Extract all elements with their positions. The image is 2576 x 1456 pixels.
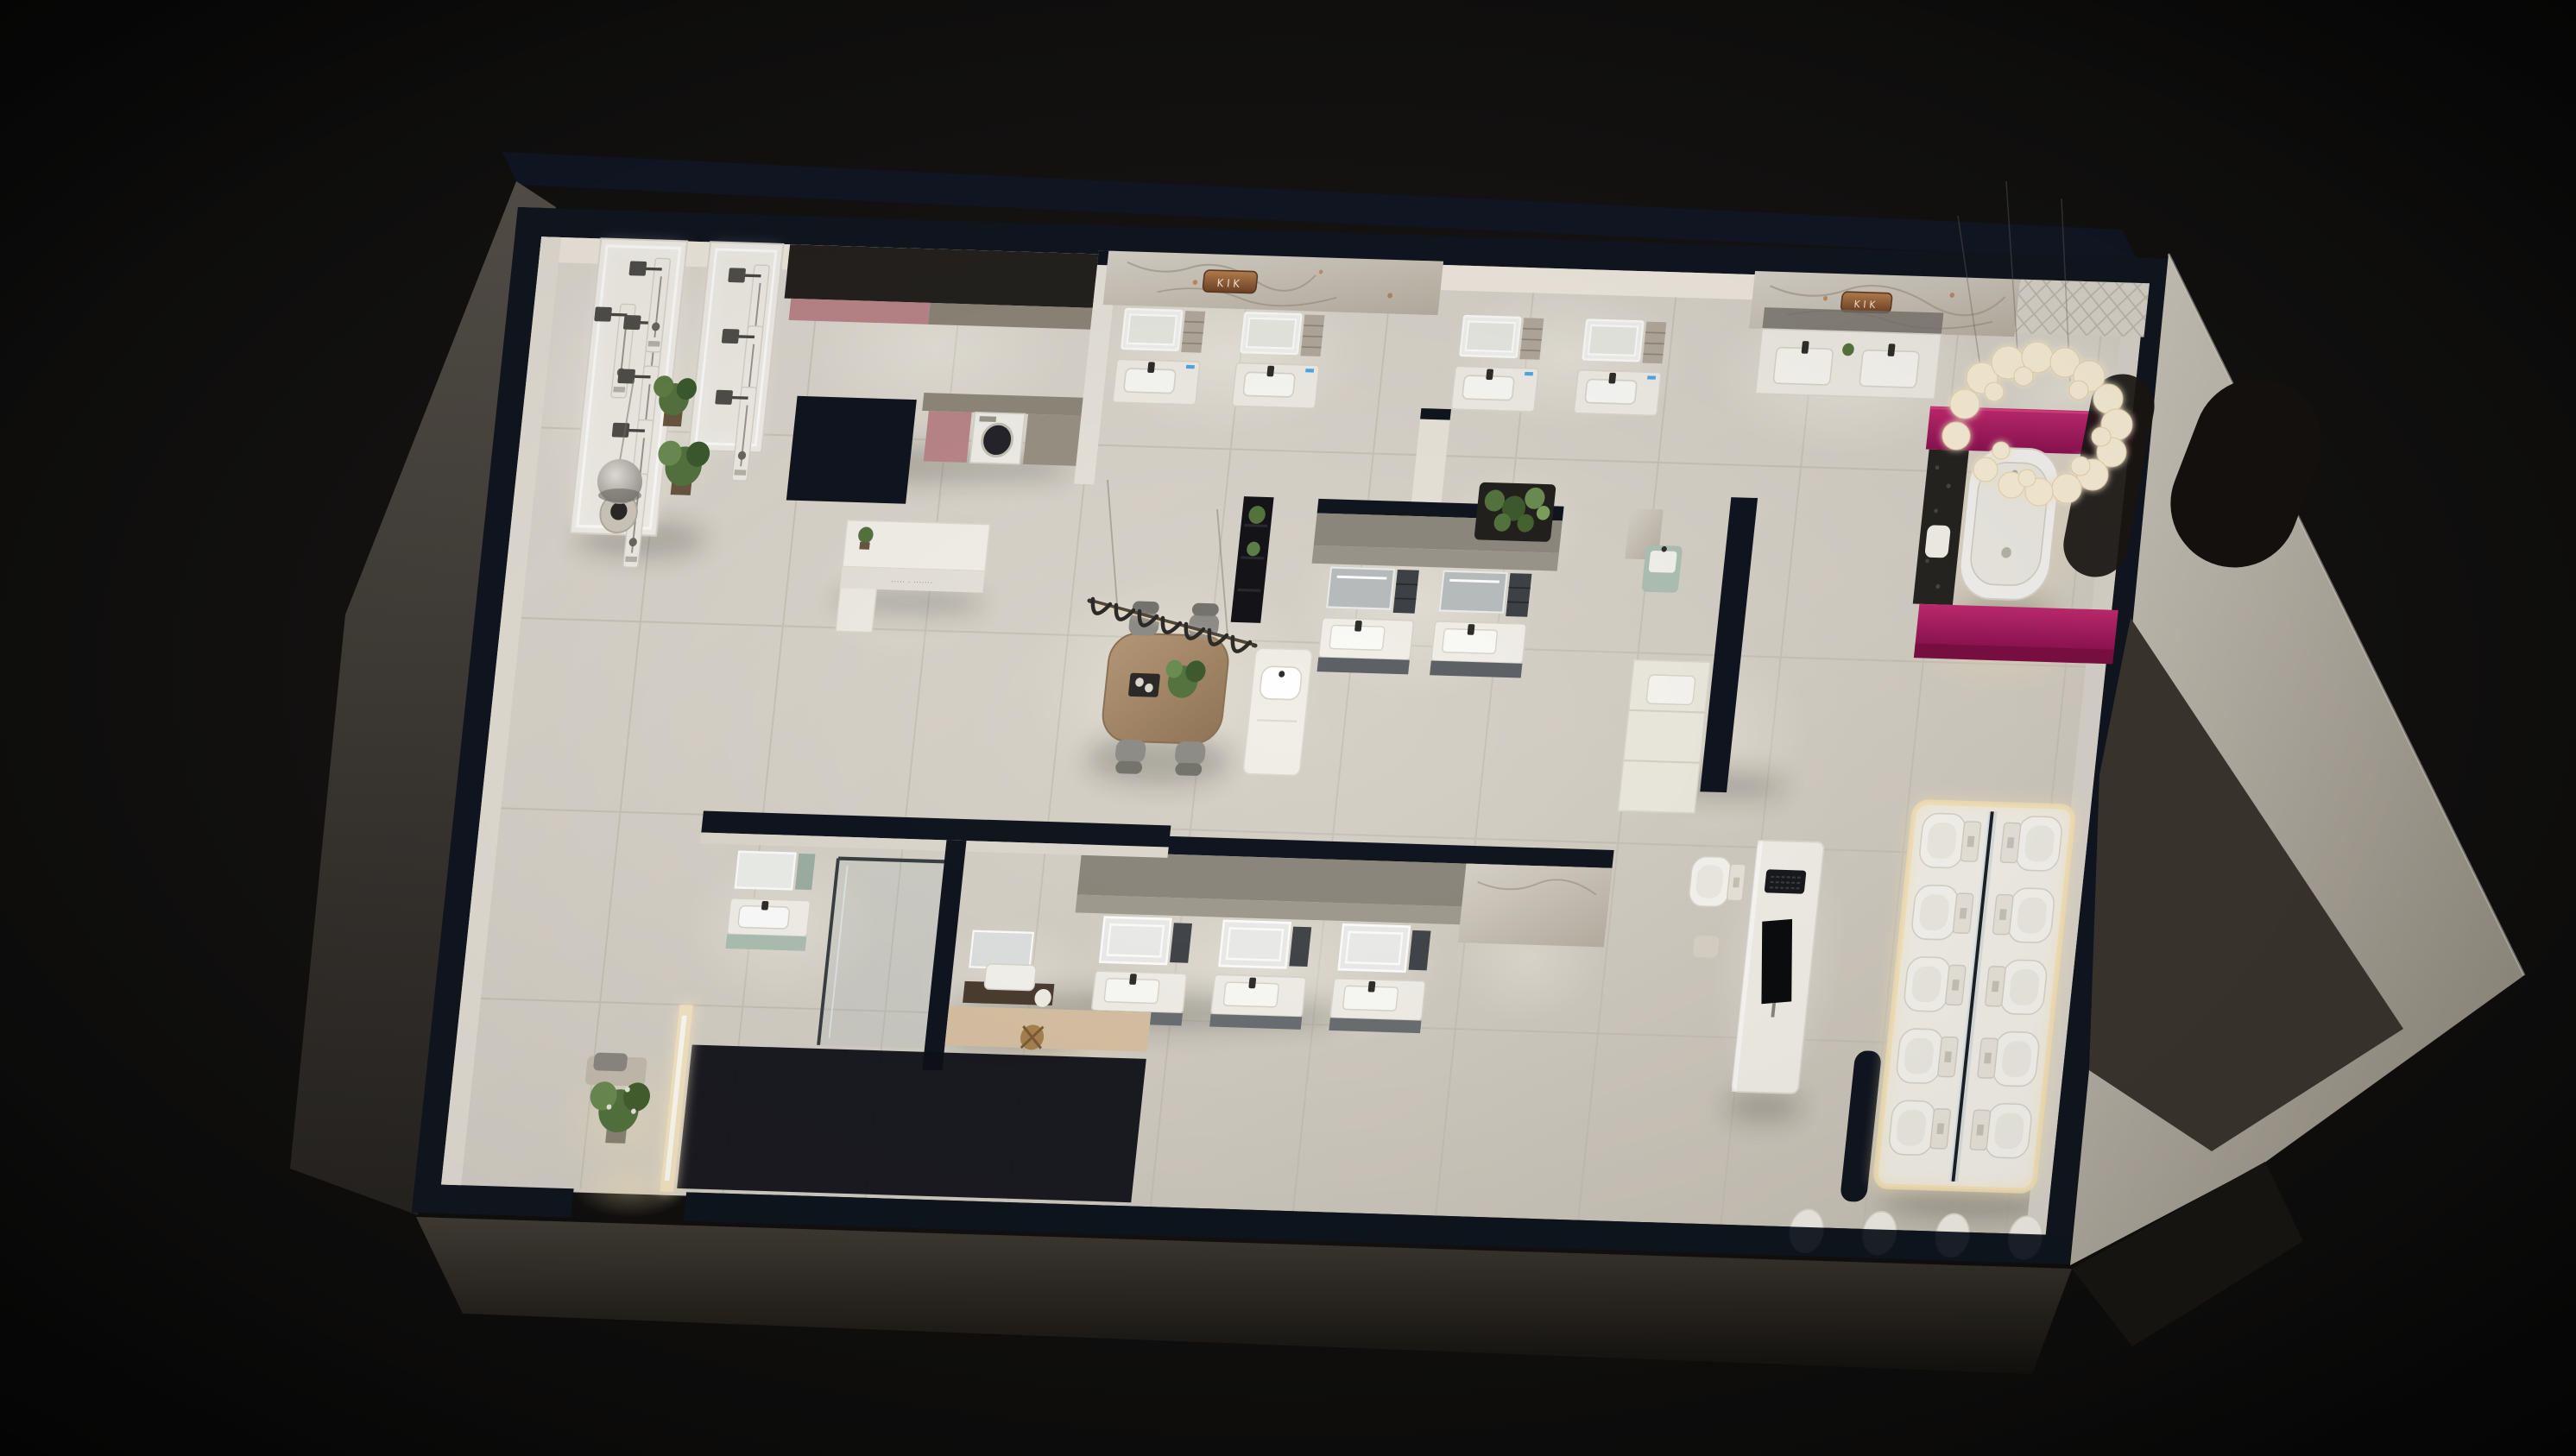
render-canvas: ····· · ······· KIK: [0, 0, 2576, 1456]
vignette-overlay: [0, 0, 2576, 1456]
showroom-render: ····· · ······· KIK: [0, 0, 2576, 1456]
